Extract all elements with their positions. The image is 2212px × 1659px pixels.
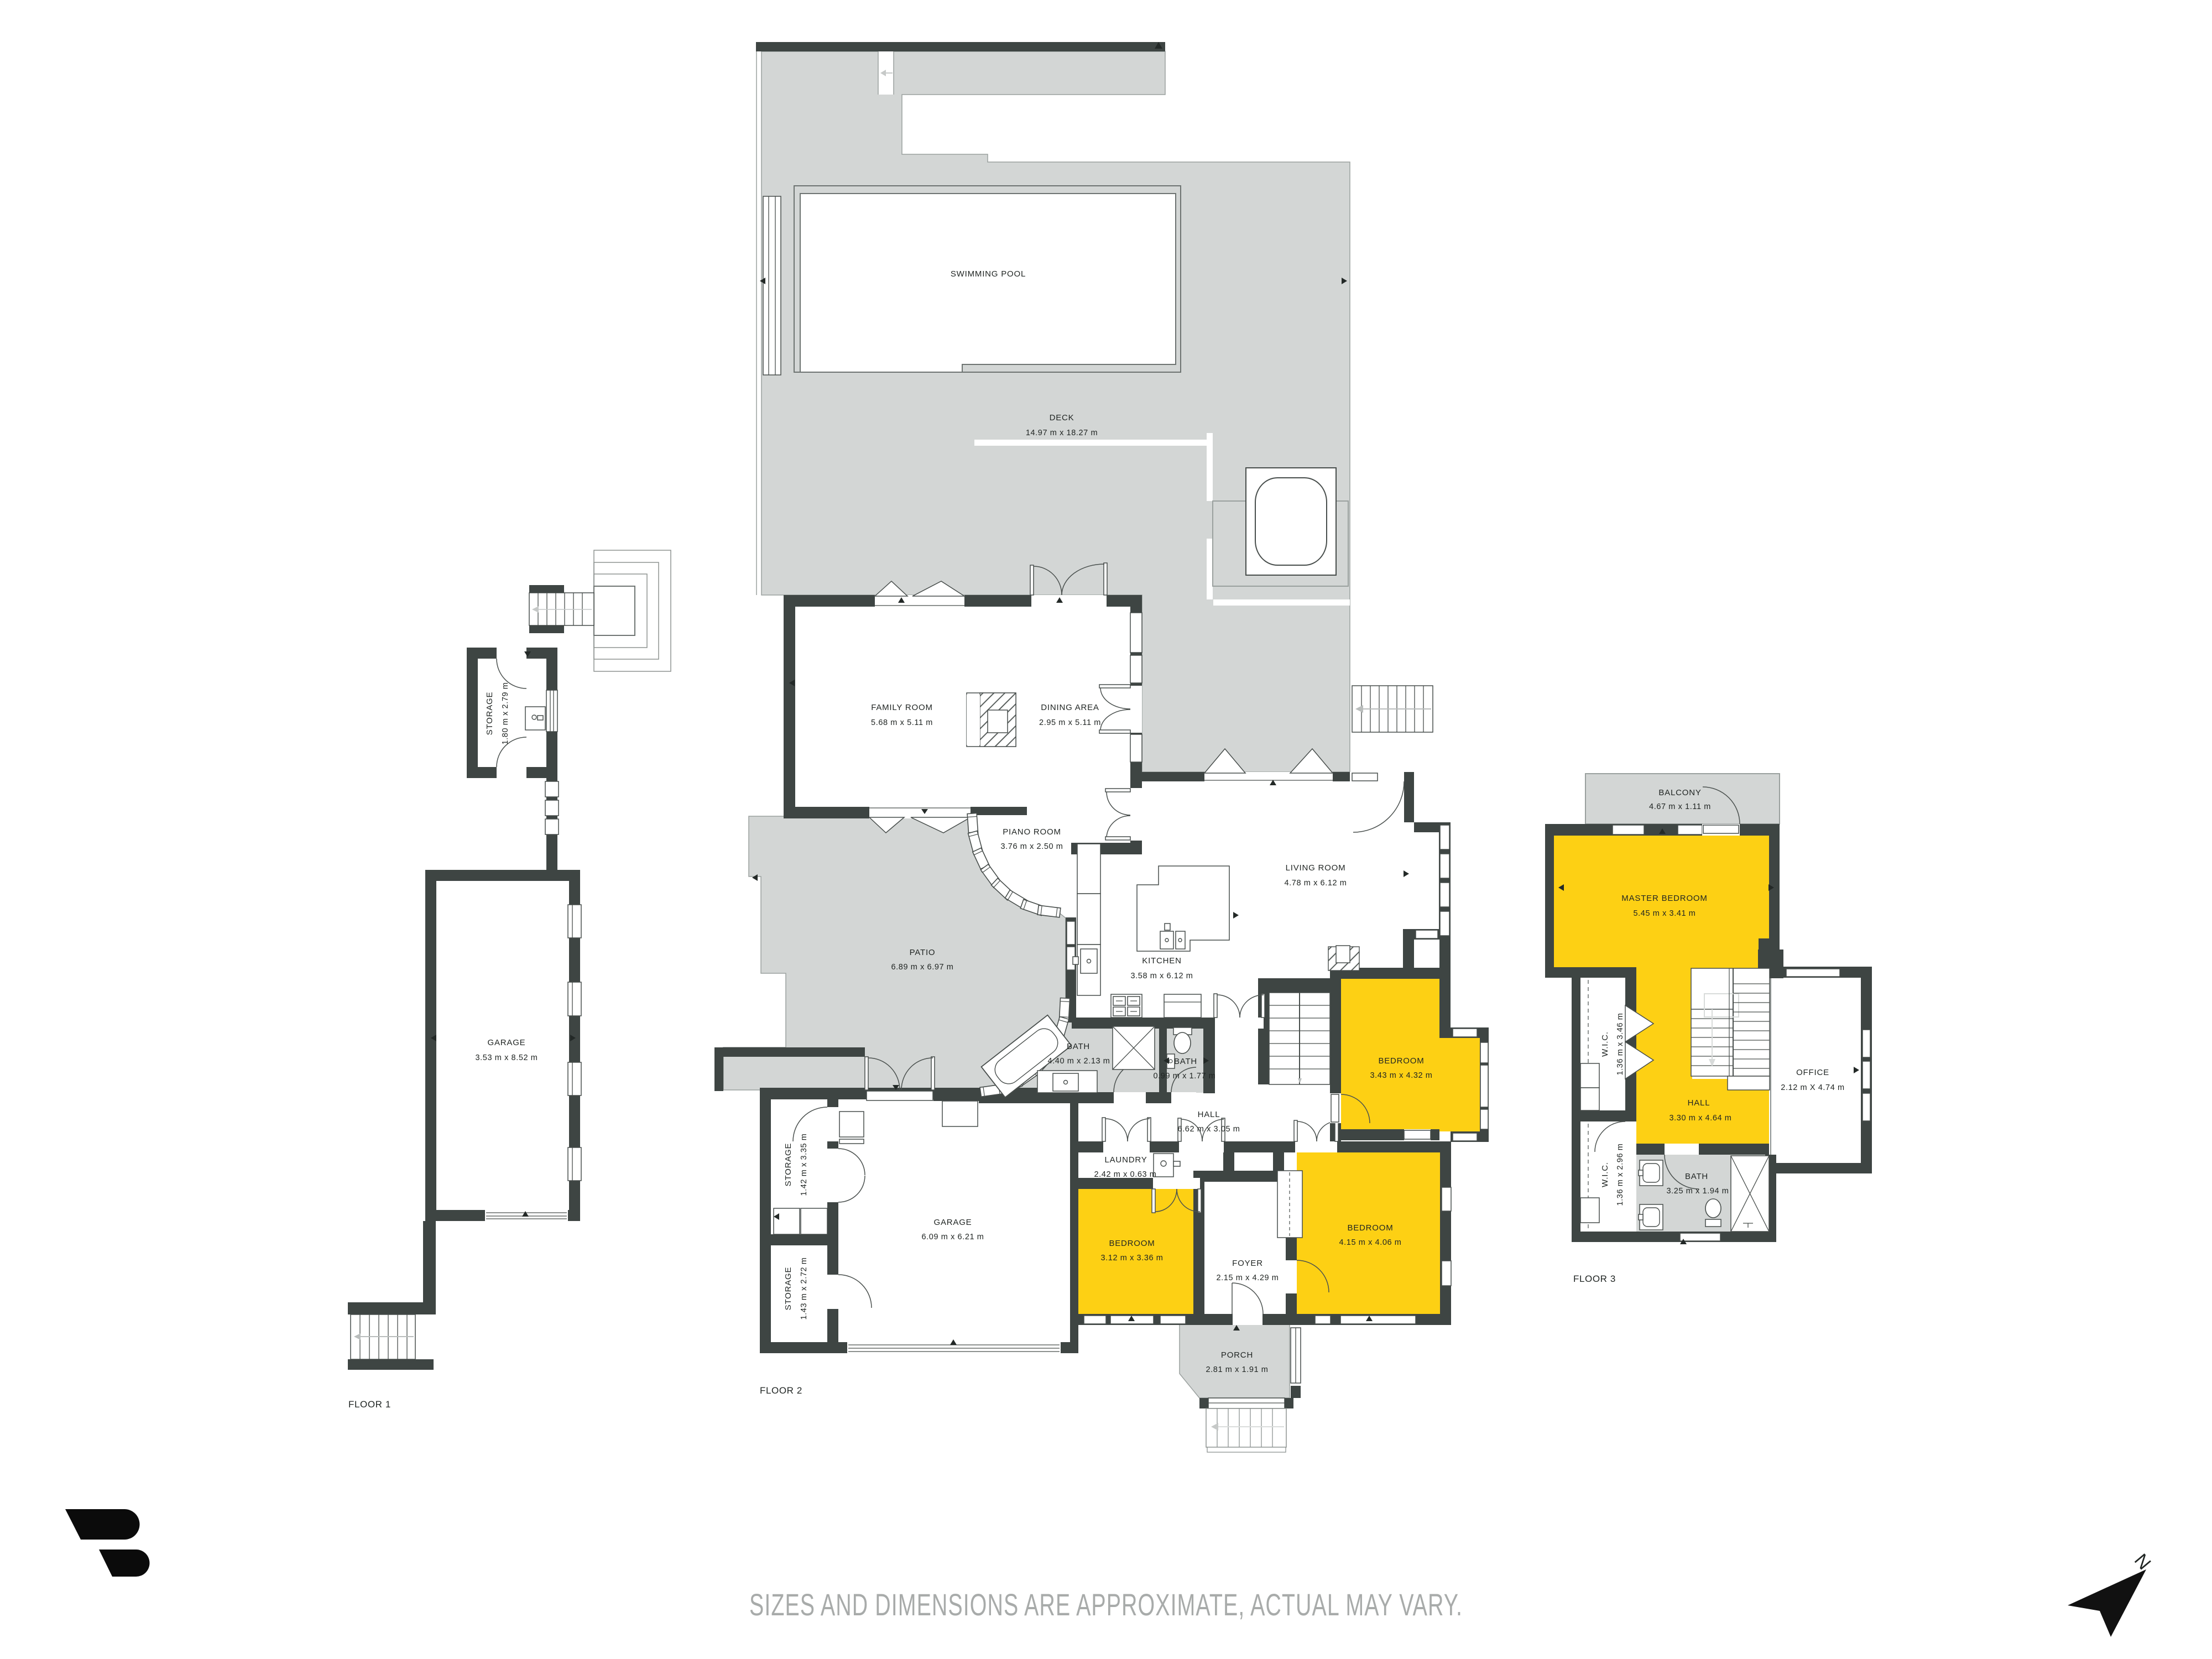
svg-text:4.15 m x 4.06 m: 4.15 m x 4.06 m — [1339, 1238, 1402, 1247]
svg-text:FOYER: FOYER — [1232, 1259, 1263, 1268]
svg-text:STORAGE: STORAGE — [784, 1143, 793, 1187]
svg-text:5.68 m x 5.11 m: 5.68 m x 5.11 m — [871, 718, 933, 727]
svg-text:2.15 m x 4.29 m: 2.15 m x 4.29 m — [1217, 1274, 1279, 1282]
svg-text:1.36 m x 3.46 m: 1.36 m x 3.46 m — [1616, 1013, 1625, 1076]
svg-text:BEDROOM: BEDROOM — [1347, 1223, 1393, 1233]
svg-text:2.95 m x 5.11 m: 2.95 m x 5.11 m — [1039, 718, 1101, 727]
svg-text:4.67 m x 1.11 m: 4.67 m x 1.11 m — [1649, 802, 1711, 811]
svg-text:HALL: HALL — [1688, 1098, 1710, 1108]
svg-text:GARAGE: GARAGE — [488, 1038, 526, 1047]
svg-text:PORCH: PORCH — [1221, 1350, 1253, 1360]
svg-text:2.81 m x 1.91 m: 2.81 m x 1.91 m — [1206, 1365, 1269, 1374]
svg-text:BALCONY: BALCONY — [1658, 788, 1701, 797]
svg-text:6.62 m x 3.05 m: 6.62 m x 3.05 m — [1178, 1125, 1240, 1134]
svg-text:0.99 m x 1.77 m: 0.99 m x 1.77 m — [1154, 1072, 1216, 1081]
svg-text:PATIO: PATIO — [910, 948, 936, 957]
svg-text:LIVING ROOM: LIVING ROOM — [1286, 863, 1346, 873]
svg-text:BEDROOM: BEDROOM — [1378, 1056, 1424, 1066]
svg-text:STORAGE: STORAGE — [485, 692, 494, 735]
svg-text:HALL: HALL — [1198, 1110, 1220, 1119]
svg-text:MASTER BEDROOM: MASTER BEDROOM — [1621, 894, 1707, 903]
svg-text:OFFICE: OFFICE — [1796, 1068, 1829, 1077]
svg-text:SIZES AND DIMENSIONS ARE APPRO: SIZES AND DIMENSIONS ARE APPROXIMATE, AC… — [749, 1587, 1463, 1622]
svg-text:3.12 m x 3.36 m: 3.12 m x 3.36 m — [1101, 1254, 1164, 1262]
svg-text:3.58 m x 6.12 m: 3.58 m x 6.12 m — [1131, 972, 1193, 980]
svg-text:DINING AREA: DINING AREA — [1041, 703, 1099, 712]
svg-text:3.25 m x 1.94 m: 3.25 m x 1.94 m — [1667, 1187, 1729, 1196]
svg-text:6.09 m x 6.21 m: 6.09 m x 6.21 m — [922, 1233, 984, 1241]
svg-text:LAUNDRY: LAUNDRY — [1104, 1155, 1147, 1165]
svg-text:1.80 m x 2.79 m: 1.80 m x 2.79 m — [501, 682, 510, 745]
svg-text:W.I.C.: W.I.C. — [1600, 1031, 1610, 1057]
svg-text:FLOOR 2: FLOOR 2 — [760, 1385, 802, 1396]
svg-text:FAMILY ROOM: FAMILY ROOM — [871, 703, 933, 712]
svg-text:3.43 m x 4.32 m: 3.43 m x 4.32 m — [1370, 1071, 1433, 1080]
svg-text:3.30 m x 4.64 m: 3.30 m x 4.64 m — [1670, 1114, 1732, 1123]
svg-text:BATH: BATH — [1685, 1172, 1708, 1181]
svg-text:3.76 m x 2.50 m: 3.76 m x 2.50 m — [1001, 842, 1063, 851]
svg-text:N: N — [2130, 1550, 2155, 1574]
svg-text:KITCHEN: KITCHEN — [1142, 956, 1181, 966]
svg-text:W.I.C.: W.I.C. — [1600, 1162, 1610, 1187]
svg-text:2.12 m X 4.74 m: 2.12 m X 4.74 m — [1781, 1083, 1844, 1092]
svg-text:14.97 m x 18.27 m: 14.97 m x 18.27 m — [1026, 429, 1098, 437]
svg-text:1.42 m x 3.35 m: 1.42 m x 3.35 m — [800, 1134, 808, 1196]
svg-text:1.36 m x 2.96 m: 1.36 m x 2.96 m — [1616, 1144, 1625, 1206]
svg-text:BEDROOM: BEDROOM — [1109, 1239, 1155, 1248]
svg-text:6.89 m x 6.97 m: 6.89 m x 6.97 m — [891, 963, 954, 972]
svg-text:5.45 m x 3.41 m: 5.45 m x 3.41 m — [1634, 909, 1696, 918]
svg-text:FLOOR 3: FLOOR 3 — [1573, 1274, 1616, 1284]
svg-text:4.78 m x 6.12 m: 4.78 m x 6.12 m — [1285, 879, 1347, 888]
svg-text:PIANO ROOM: PIANO ROOM — [1003, 827, 1061, 837]
svg-text:STORAGE: STORAGE — [784, 1267, 793, 1311]
svg-text:BATH: BATH — [1067, 1042, 1090, 1051]
svg-text:2.42 m x 0.63 m: 2.42 m x 0.63 m — [1094, 1170, 1157, 1179]
svg-text:DECK: DECK — [1050, 413, 1074, 422]
svg-text:1.43 m x 2.72 m: 1.43 m x 2.72 m — [800, 1258, 808, 1320]
svg-text:3.53 m x 8.52 m: 3.53 m x 8.52 m — [476, 1053, 538, 1062]
svg-text:SWIMMING POOL: SWIMMING POOL — [951, 269, 1026, 279]
svg-text:FLOOR 1: FLOOR 1 — [348, 1399, 391, 1410]
svg-text:GARAGE: GARAGE — [934, 1218, 972, 1227]
svg-text:4.40 m x 2.13 m: 4.40 m x 2.13 m — [1048, 1057, 1110, 1066]
svg-text:BATH: BATH — [1174, 1057, 1197, 1066]
